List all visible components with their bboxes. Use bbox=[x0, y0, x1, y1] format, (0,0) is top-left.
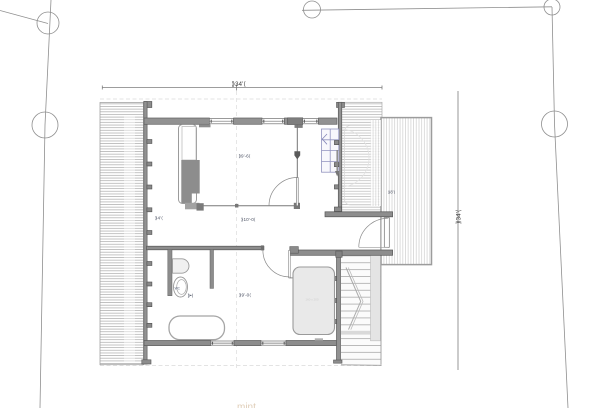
svg-text:⟫34’⟨: ⟫34’⟨ bbox=[456, 210, 463, 224]
svg-text:160 x 200: 160 x 200 bbox=[305, 298, 319, 302]
svg-text:⟫4’⟨: ⟫4’⟨ bbox=[155, 216, 163, 221]
svg-text:⟫10’-0⟨: ⟫10’-0⟨ bbox=[241, 217, 256, 222]
svg-text:mint: mint bbox=[237, 402, 256, 408]
svg-text:⟫8’⟨: ⟫8’⟨ bbox=[388, 190, 396, 195]
svg-text:⟫•⟨: ⟫•⟨ bbox=[188, 293, 194, 298]
svg-text:⟫9’-6⟨: ⟫9’-6⟨ bbox=[239, 153, 251, 158]
svg-text:⟫34’⟨: ⟫34’⟨ bbox=[232, 81, 246, 88]
svg-text:WC: WC bbox=[175, 286, 181, 290]
svg-text:⟫9’-0⟨: ⟫9’-0⟨ bbox=[239, 292, 251, 297]
